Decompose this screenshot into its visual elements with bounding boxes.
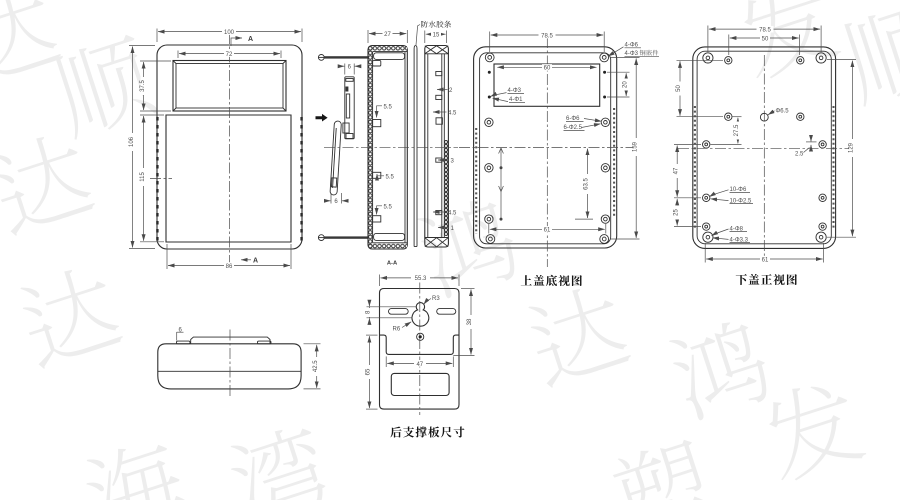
svg-text:61: 61 — [762, 257, 769, 263]
svg-text:27.5: 27.5 — [734, 124, 740, 136]
svg-text:159: 159 — [632, 141, 638, 152]
svg-text:72: 72 — [226, 52, 233, 58]
svg-text:86: 86 — [226, 264, 233, 270]
svg-text:42.5: 42.5 — [313, 360, 319, 372]
svg-text:37.5: 37.5 — [140, 80, 146, 92]
svg-text:63.5: 63.5 — [584, 178, 590, 190]
svg-text:R6: R6 — [393, 327, 401, 333]
svg-text:A: A — [253, 258, 258, 265]
svg-text:4.5: 4.5 — [448, 211, 457, 217]
svg-text:20: 20 — [622, 81, 628, 88]
svg-text:50: 50 — [762, 36, 769, 42]
svg-text:R3: R3 — [432, 296, 440, 302]
svg-text:5.5: 5.5 — [384, 105, 393, 111]
svg-text:5.5: 5.5 — [386, 175, 395, 181]
svg-text:106: 106 — [129, 136, 135, 147]
svg-text:78.5: 78.5 — [541, 33, 553, 39]
svg-text:47: 47 — [416, 362, 423, 368]
svg-text:100: 100 — [224, 30, 235, 36]
svg-text:50: 50 — [676, 85, 682, 92]
svg-text:65: 65 — [366, 368, 372, 375]
svg-text:Φ6.5: Φ6.5 — [776, 109, 790, 115]
svg-text:60: 60 — [544, 66, 551, 72]
svg-text:115: 115 — [140, 172, 146, 182]
svg-text:15: 15 — [433, 33, 440, 39]
svg-text:A-A: A-A — [387, 261, 398, 267]
svg-text:78.5: 78.5 — [759, 28, 771, 34]
svg-text:A: A — [248, 36, 253, 43]
svg-text:5.5: 5.5 — [384, 205, 393, 211]
svg-text:129: 129 — [849, 142, 855, 153]
svg-text:47: 47 — [673, 167, 679, 174]
svg-text:38: 38 — [467, 318, 473, 325]
svg-text:25: 25 — [673, 209, 679, 216]
svg-text:55.3: 55.3 — [415, 276, 427, 282]
svg-text:27: 27 — [384, 32, 391, 38]
svg-text:61: 61 — [544, 228, 551, 234]
svg-text:4.5: 4.5 — [448, 111, 457, 117]
svg-text:2.5: 2.5 — [795, 152, 804, 158]
